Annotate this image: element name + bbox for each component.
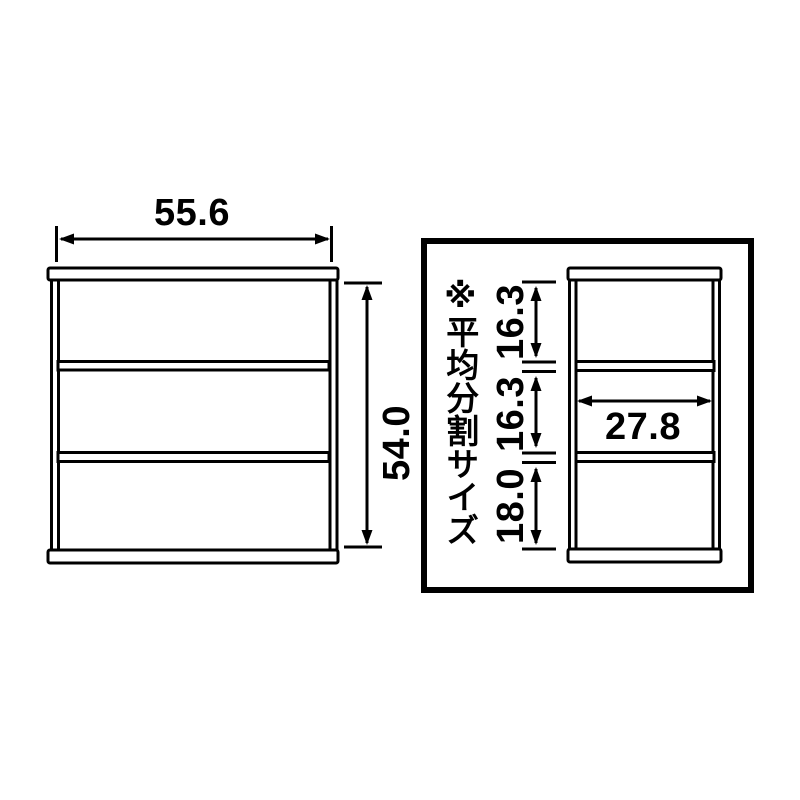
arrowhead-right-icon xyxy=(315,234,330,245)
front-top-panel xyxy=(48,268,338,280)
front-height-label: 54.0 xyxy=(378,405,416,481)
front-width-label: 55.6 xyxy=(154,194,230,232)
arrowhead-down-icon xyxy=(362,530,373,545)
detail-shelf-1 xyxy=(576,362,714,371)
detail-opening-3-label: 18.0 xyxy=(492,468,530,544)
average-split-size-note: ※平均分割サイズ xyxy=(443,276,476,546)
detail-top-panel xyxy=(568,268,721,280)
detail-opening-2-label: 16.3 xyxy=(492,376,530,452)
diagram-linework xyxy=(0,0,800,800)
arrowhead-up-icon xyxy=(362,285,373,300)
detail-shelf-2 xyxy=(576,453,714,462)
front-right-side-panel xyxy=(330,280,337,551)
furniture-dimension-diagram: 55.6 54.0 ※平均分割サイズ 16.3 16.3 18.0 27.8 xyxy=(0,0,800,800)
detail-opening-1-label: 16.3 xyxy=(492,284,530,360)
front-bottom-panel xyxy=(48,550,338,563)
front-shelf-2 xyxy=(58,453,329,462)
detail-inner-width-label: 27.8 xyxy=(605,408,681,446)
front-left-side-panel xyxy=(52,280,59,551)
front-shelf-1 xyxy=(58,362,329,371)
detail-bottom-panel xyxy=(568,549,721,562)
front-view-shelf xyxy=(48,268,338,563)
arrowhead-left-icon xyxy=(59,234,74,245)
